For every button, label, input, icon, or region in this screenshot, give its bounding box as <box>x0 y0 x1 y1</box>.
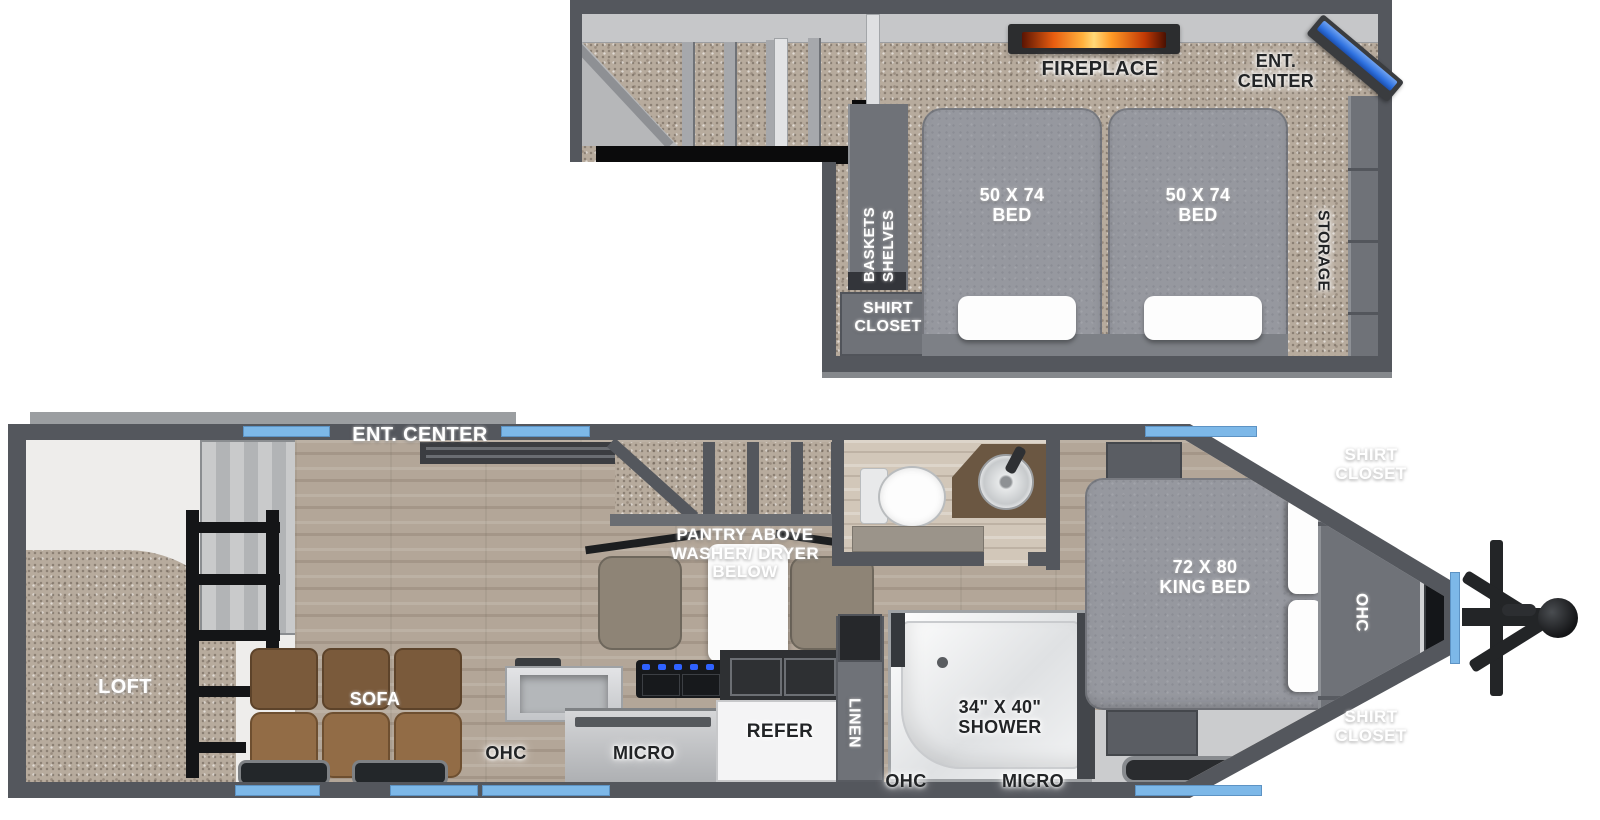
shower <box>888 610 1092 782</box>
loft-ladder-rung <box>186 630 280 641</box>
bed-right-label: 50 X 74 BED <box>1133 186 1263 226</box>
stair-tread <box>703 442 715 518</box>
stair-divider-wall <box>774 38 788 148</box>
loft-ladder-rail <box>186 510 199 778</box>
upper-ent-center-label: ENT. CENTER <box>1226 52 1326 92</box>
bathroom-bench <box>852 526 984 552</box>
bedroom-cabinet <box>1106 710 1198 756</box>
linen-closet-top <box>838 614 882 662</box>
storage-divider <box>1348 240 1378 243</box>
lower-staircase <box>615 442 845 518</box>
upper-shirt-closet-label: SHIRT CLOSET <box>842 300 934 335</box>
fireplace-label: FIREPLACE <box>1018 58 1182 80</box>
shirt-closet-bottom-label: SHIRT CLOSET <box>1326 708 1416 745</box>
window <box>235 785 320 796</box>
king-bed-pillow <box>1288 600 1322 692</box>
shower-pan <box>901 621 1081 769</box>
shirt-closet-top-label: SHIRT CLOSET <box>1326 446 1416 483</box>
ent-center-label: ENT. CENTER <box>348 424 492 446</box>
hitch-coupler <box>1538 598 1578 638</box>
bed-pillow <box>1144 296 1262 340</box>
front-window <box>1450 572 1460 664</box>
bed-pillow <box>958 296 1076 340</box>
bed-left-label: 50 X 74 BED <box>947 186 1077 226</box>
storage-label: STORAGE <box>1314 186 1332 316</box>
upper-wall-lip <box>822 372 1392 378</box>
pantry-label: PANTRY ABOVE WASHER/ DRYER BELOW <box>650 526 840 582</box>
ent-shelf-line <box>426 455 636 458</box>
shower-drain <box>937 657 948 668</box>
storage-divider <box>1348 312 1378 315</box>
kitchen-micro-label: MICRO <box>606 744 682 764</box>
linen-label: LINEN <box>845 668 863 778</box>
sofa-back-cushion <box>250 648 318 710</box>
bottom-ohc-label: OHC <box>876 772 936 792</box>
roof-slab <box>30 412 516 424</box>
baskets-shelves-label: BASKETS SHELVES <box>853 112 905 282</box>
window <box>390 785 478 796</box>
stair-tread <box>808 38 821 146</box>
hitch-jack-handle <box>1502 604 1536 616</box>
storage-cabinet <box>1348 96 1381 356</box>
window <box>1145 426 1257 437</box>
upper-deck-plan: FIREPLACE ENT. CENTER STORAGE BASKETS SH… <box>570 0 1392 378</box>
main-deck-plan: LOFT ENT. CENTER PANTRY ABOVE WASHER/ DR… <box>0 410 1600 820</box>
stove-knob <box>674 664 682 670</box>
window <box>243 426 330 437</box>
upper-wall-face <box>582 14 1378 43</box>
stove-knob <box>706 664 714 670</box>
loft-ladder-rung <box>186 574 280 585</box>
stove-grate <box>682 674 720 696</box>
stove-knob <box>642 664 650 670</box>
window <box>501 426 590 437</box>
storage-divider <box>1348 168 1378 171</box>
floorplan-canvas: FIREPLACE ENT. CENTER STORAGE BASKETS SH… <box>0 0 1600 820</box>
stove-knob <box>690 664 698 670</box>
microwave-door-slot <box>575 717 711 727</box>
cooktop <box>636 660 724 698</box>
bathroom-wall <box>832 552 984 566</box>
ent-shelf-line <box>426 447 636 450</box>
bottom-micro-label: MICRO <box>998 772 1068 792</box>
loft-ladder-rung <box>186 742 246 753</box>
loft-label: LOFT <box>70 676 180 698</box>
refer-top <box>720 650 842 700</box>
toilet <box>878 466 946 528</box>
stair-stringer <box>607 438 698 522</box>
stair-half-wall <box>866 14 880 112</box>
refer-vent <box>730 658 782 696</box>
stairwell-opening <box>596 146 872 164</box>
entry-door-window <box>1135 785 1262 796</box>
window <box>482 785 610 796</box>
sofa-label: SOFA <box>335 690 415 710</box>
bathroom-sink <box>978 454 1034 510</box>
stair-tread <box>747 442 759 518</box>
shower-door-frame <box>891 613 905 667</box>
loft-ladder-rung <box>186 522 280 533</box>
refer-label: REFER <box>738 722 822 743</box>
bathroom <box>832 440 1054 566</box>
stair-tread <box>682 42 695 146</box>
kitchen-ohc-label: OHC <box>470 744 542 764</box>
bedroom-divider-wall <box>1046 440 1060 570</box>
front-ohc-label: OHC <box>1352 562 1371 662</box>
refer-vent <box>784 658 836 696</box>
stove-grate <box>642 674 680 696</box>
stair-tread <box>724 42 737 146</box>
fireplace <box>1008 24 1180 54</box>
stair-tread <box>791 442 803 518</box>
stove-knob <box>658 664 666 670</box>
shower-label: 34" X 40" SHOWER <box>935 698 1065 738</box>
bedroom-cabinet <box>1106 442 1182 480</box>
fireplace-flame <box>1022 32 1166 48</box>
king-bed-label: 72 X 80 KING BED <box>1138 558 1272 598</box>
